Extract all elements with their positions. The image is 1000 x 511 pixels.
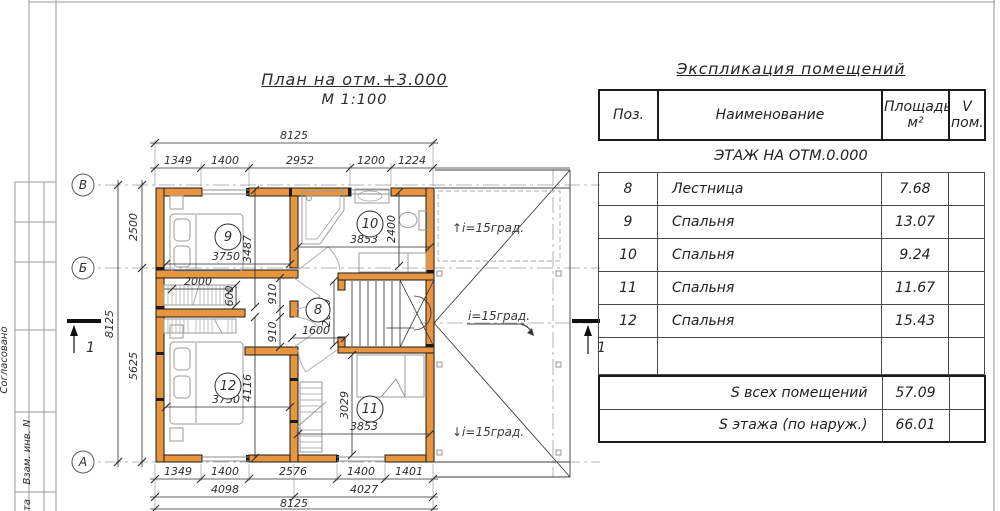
- column-header-v: V пом.: [949, 90, 985, 140]
- row-name: Спальня: [658, 239, 882, 272]
- slope-label-right: i=15град.: [468, 309, 530, 323]
- nightstand-room12-bottom: [170, 428, 183, 441]
- totals-row: S этажа (по наруж.) 66.01: [599, 409, 985, 442]
- total-label-floor: S этажа (по наруж.): [599, 409, 882, 442]
- stairs: [352, 280, 434, 347]
- room-number-9: 9: [224, 230, 232, 245]
- axis-label-v: В: [79, 178, 87, 192]
- column-header-area-line2: м²: [884, 115, 947, 131]
- section-mark-left: 1: [86, 340, 95, 356]
- stamp-ta: та: [22, 499, 33, 511]
- dim-bot-mid-1: 4027: [350, 483, 378, 496]
- table-row: 12 Спальня 15.43: [599, 305, 985, 338]
- row-name: Спальня: [658, 206, 882, 239]
- row-pos: 9: [599, 206, 658, 239]
- dim-4116: 4116: [241, 374, 254, 402]
- dim-top-1: 1400: [211, 154, 239, 167]
- dim-2400: 2400: [385, 215, 398, 243]
- dim-2000: 2000: [184, 275, 212, 288]
- row-pos: 10: [599, 239, 658, 272]
- column-header-v-line2: пом.: [951, 115, 983, 131]
- table-row: 9 Спальня 13.07: [599, 206, 985, 239]
- dim-1600: 1600: [302, 324, 330, 337]
- plan-title-block: План на отм.+3.000 М 1:100: [252, 70, 457, 108]
- dim-left-1: 5625: [127, 352, 140, 380]
- row-v: [949, 173, 985, 206]
- row-area: 9.24: [882, 239, 949, 272]
- total-value-floor: 66.01: [882, 409, 949, 442]
- row-area: 11.67: [882, 272, 949, 305]
- room-number-8: 8: [314, 303, 322, 318]
- corner-bathtub: [302, 191, 344, 244]
- dim-top-total: 8125: [280, 129, 308, 142]
- dim-bot-4: 1401: [395, 465, 423, 478]
- dim-top-2: 2952: [286, 154, 314, 167]
- dim-3487: 3487: [241, 235, 254, 263]
- row-name: Спальня: [658, 305, 882, 338]
- row-name: Спальня: [658, 272, 882, 305]
- drawing-sheet: Согласовано Взам. инв. N та В Б А: [0, 0, 1000, 511]
- dim-910a: 910: [266, 284, 279, 305]
- dim-bot-3: 1400: [347, 465, 375, 478]
- schedule-section-title: ЭТАЖ НА ОТМ.0.000: [598, 141, 984, 172]
- dim-bot-mid-0: 4098: [211, 483, 239, 496]
- row-v: [949, 305, 985, 338]
- schedule-totals: S всех помещений 57.09 S этажа (по наруж…: [598, 375, 986, 443]
- dim-bot-1: 1400: [211, 465, 239, 478]
- dim-top-4: 1224: [398, 154, 426, 167]
- row-area: 13.07: [882, 206, 949, 239]
- table-row-empty: [599, 338, 985, 375]
- dim-top-0: 1349: [164, 154, 192, 167]
- plan-title: План на отм.+3.000: [252, 70, 457, 89]
- column-header-name: Наименование: [658, 90, 882, 140]
- dim-bot-0: 1349: [164, 465, 192, 478]
- total-label-all-rooms: S всех помещений: [599, 376, 882, 409]
- schedule-rows: 8 Лестница 7.68 9 Спальня 13.07 10 Спаль…: [598, 172, 985, 375]
- ladder: [296, 382, 326, 452]
- room-schedule: Экспликация помещений Поз. Наименование …: [598, 60, 984, 443]
- row-pos: 11: [599, 272, 658, 305]
- column-header-v-line1: V: [951, 99, 983, 115]
- stamp-soglasovano: Согласовано: [0, 326, 10, 393]
- row-area: 7.68: [882, 173, 949, 206]
- stamp-vzam-inv: Взам. инв. N: [22, 419, 33, 484]
- dim-left-0: 2500: [127, 213, 140, 241]
- bed-room11: [357, 355, 424, 397]
- axis-label-b: Б: [79, 261, 87, 275]
- room-number-11: 11: [362, 402, 379, 417]
- row-area: 15.43: [882, 305, 949, 338]
- table-row: 10 Спальня 9.24: [599, 239, 985, 272]
- schedule-header: Поз. Наименование Площадь м² V пом.: [598, 89, 986, 141]
- axis-label-a: А: [78, 455, 87, 469]
- toilet-bowl: [399, 213, 417, 228]
- dim-top-3: 1200: [357, 154, 385, 167]
- column-header-area-line1: Площадь: [884, 99, 947, 115]
- nightstand-room9: [170, 196, 183, 209]
- title-block-labels: Согласовано Взам. инв. N та: [0, 326, 33, 511]
- dim-bot-2: 2576: [279, 465, 307, 478]
- bed-room10: [359, 253, 426, 272]
- column-header-pos: Поз.: [599, 90, 658, 140]
- dim-600: 600: [223, 286, 236, 307]
- roof-outline: ↑i=15град. i=15град. ↓i=15град.: [434, 170, 570, 477]
- row-name: Лестница: [658, 173, 882, 206]
- total-value-all-rooms: 57.09: [882, 376, 949, 409]
- dimension-texts: 8125 1349 1400 2952 1200 1224 1349 1400 …: [103, 129, 426, 510]
- room-number-12: 12: [220, 379, 237, 394]
- dim-bot-total: 8125: [280, 497, 308, 510]
- slope-label-down: ↓i=15град.: [452, 425, 524, 439]
- slope-label-up: ↑i=15град.: [452, 221, 524, 235]
- totals-row: S всех помещений 57.09: [599, 376, 985, 409]
- row-pos: 12: [599, 305, 658, 338]
- table-row: 11 Спальня 11.67: [599, 272, 985, 305]
- plan-scale: М 1:100: [252, 92, 457, 108]
- dim-left-total: 8125: [103, 310, 116, 338]
- row-pos: 8: [599, 173, 658, 206]
- room-number-10: 10: [362, 217, 379, 232]
- row-v: [949, 272, 985, 305]
- row-v: [949, 239, 985, 272]
- dim-910b: 910: [266, 322, 279, 343]
- dim-3029: 3029: [338, 391, 351, 419]
- column-header-area: Площадь м²: [882, 90, 949, 140]
- row-v: [949, 206, 985, 239]
- schedule-title: Экспликация помещений: [598, 60, 984, 78]
- dim-3750-r9: 3750: [212, 250, 240, 263]
- table-row: 8 Лестница 7.68: [599, 173, 985, 206]
